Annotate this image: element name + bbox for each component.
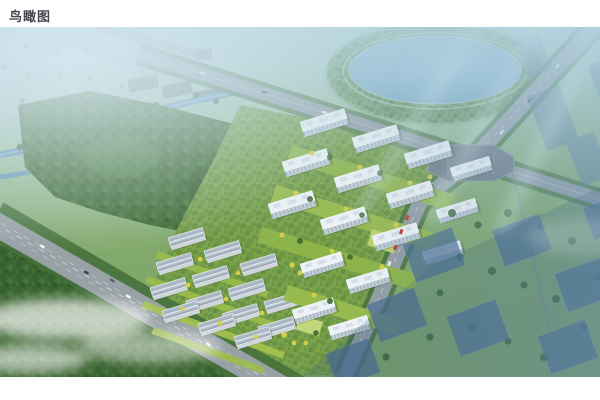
atmosphere-haze [0,27,600,377]
aerial-rendering [0,27,600,377]
document-page: 鸟瞰图 [0,0,600,400]
page-title: 鸟瞰图 [9,6,51,25]
aerial-rendering-image [0,27,600,377]
